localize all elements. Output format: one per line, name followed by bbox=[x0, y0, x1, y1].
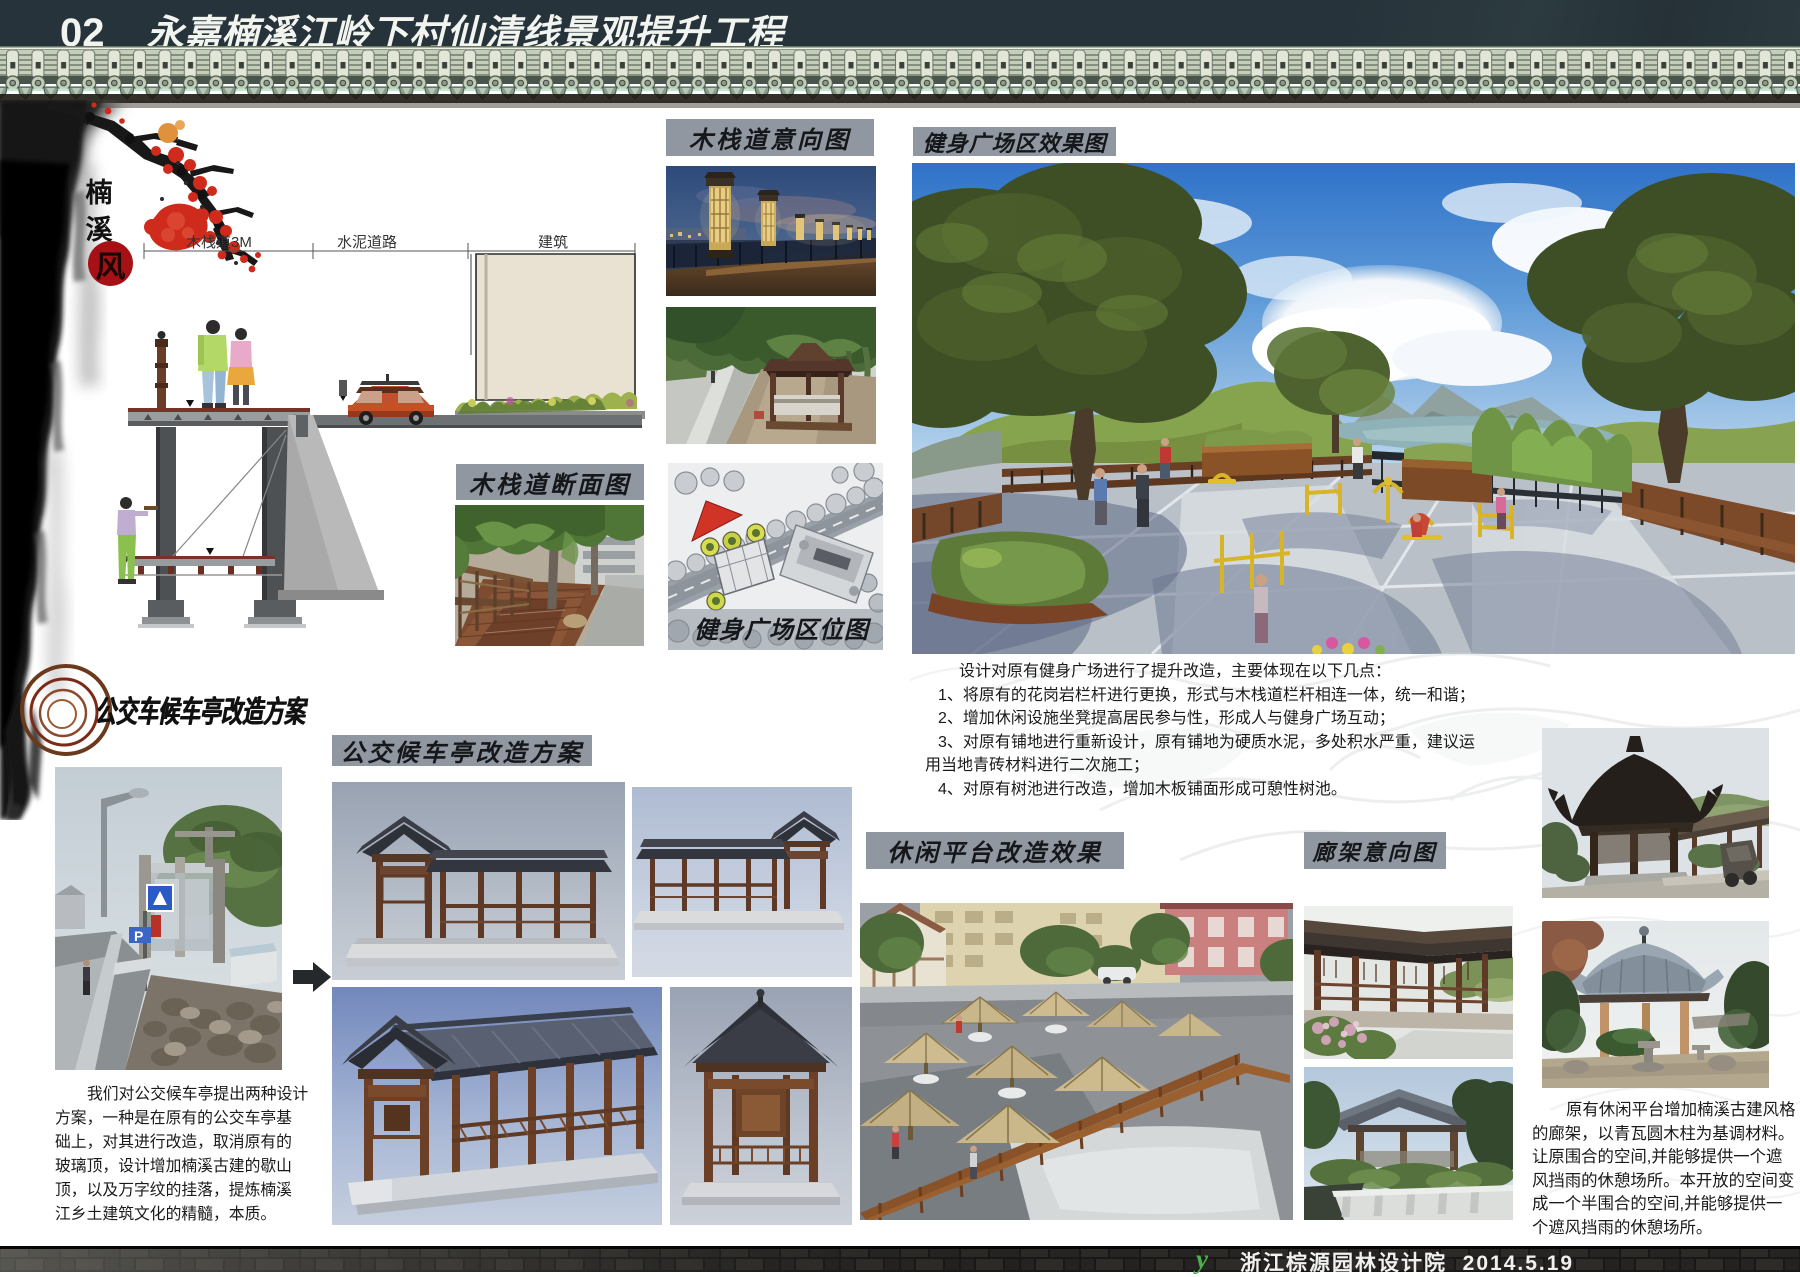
svg-text:建筑: 建筑 bbox=[538, 235, 568, 251]
svg-text:水泥道路: 水泥道路 bbox=[337, 235, 397, 251]
svg-text:健身广场区位图: 健身广场区位图 bbox=[694, 617, 872, 644]
svg-text:P: P bbox=[134, 928, 143, 944]
svg-text:木栈道3M: 木栈道3M bbox=[186, 235, 252, 251]
